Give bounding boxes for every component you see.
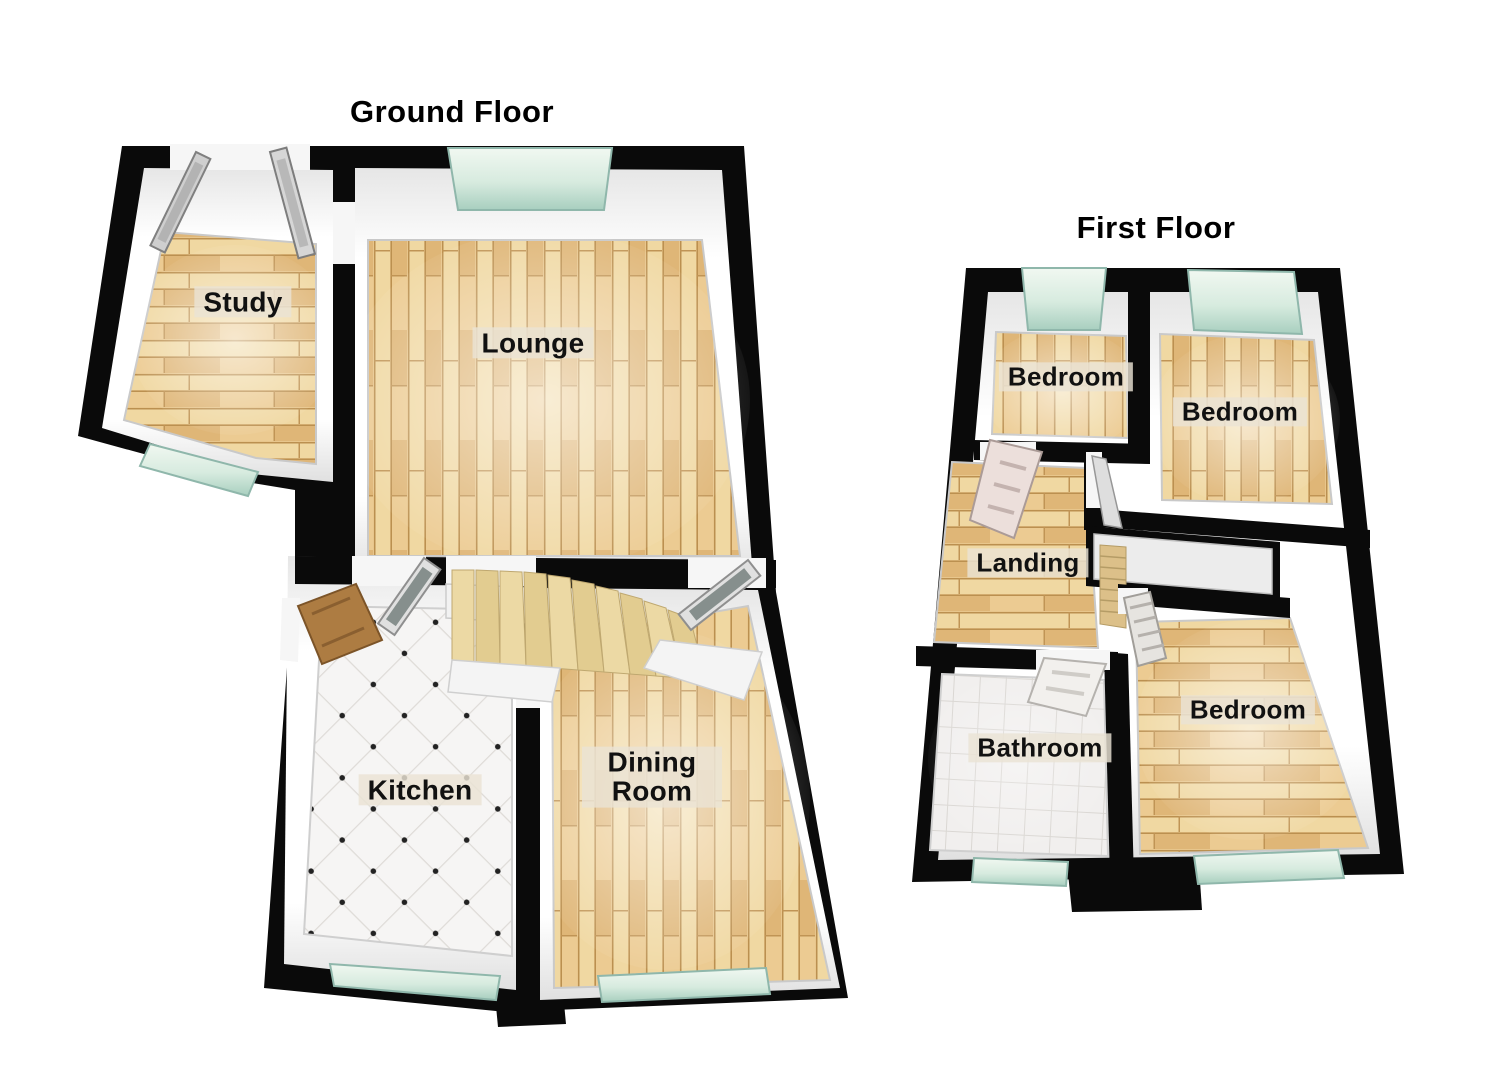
study-lounge-door-opening xyxy=(333,202,355,264)
bedroom3-light xyxy=(1135,620,1365,840)
room-label-bathroom: Bathroom xyxy=(968,733,1111,762)
window xyxy=(1188,270,1302,334)
kitchen-side-door-opening xyxy=(280,598,300,662)
room-label-bedroom-2: Bedroom xyxy=(1173,397,1307,426)
room-label-study: Study xyxy=(194,286,291,317)
floorplan-page: Ground Floor First Floor Study Lounge Ki… xyxy=(0,0,1485,1080)
window xyxy=(448,148,612,210)
ground-floor-plan xyxy=(78,144,848,1027)
room-label-bedroom-1: Bedroom xyxy=(999,362,1133,391)
window xyxy=(1194,850,1344,884)
window xyxy=(1022,268,1106,330)
ground-floor-title: Ground Floor xyxy=(350,94,554,130)
room-label-lounge: Lounge xyxy=(473,327,594,358)
room-label-kitchen: Kitchen xyxy=(359,774,482,805)
room-label-landing: Landing xyxy=(967,548,1088,577)
first-floor-title: First Floor xyxy=(1077,210,1236,246)
floorplan-canvas xyxy=(0,0,1485,1080)
room-label-bedroom-3: Bedroom xyxy=(1181,695,1315,724)
study-light xyxy=(130,245,340,435)
window xyxy=(972,858,1068,886)
room-label-dining-room: Dining Room xyxy=(582,747,722,808)
lounge-light xyxy=(340,230,750,570)
first-floor-plan xyxy=(912,268,1404,912)
